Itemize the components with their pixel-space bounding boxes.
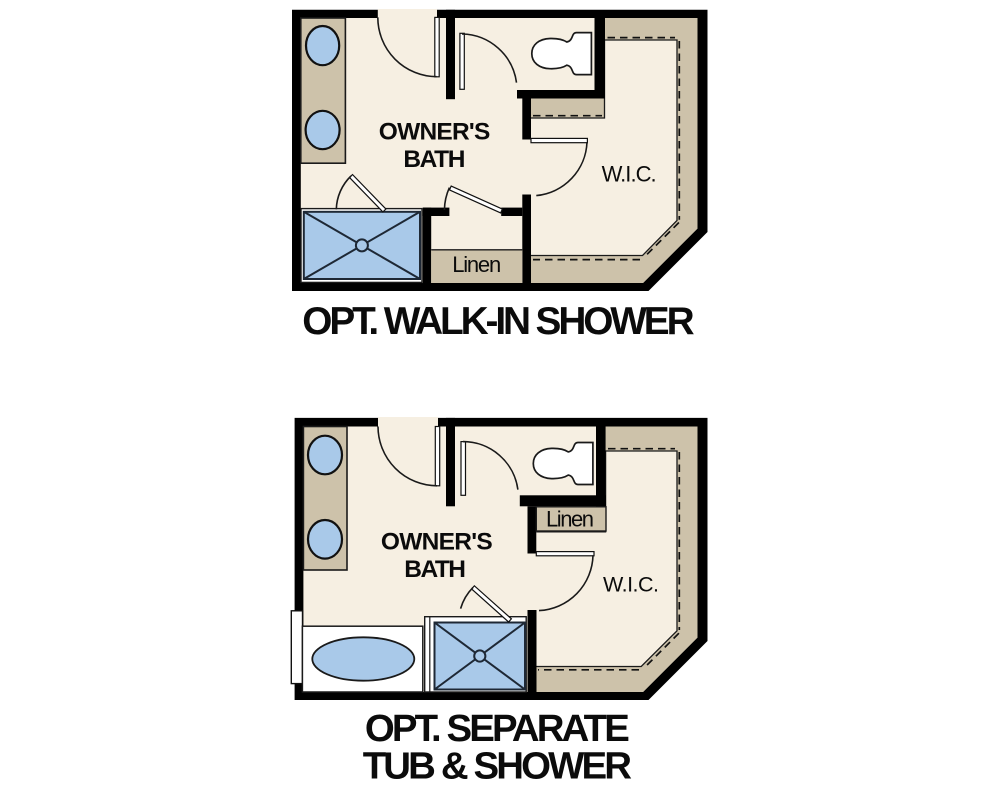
svg-text:Linen: Linen <box>546 507 594 532</box>
svg-text:OWNER'S: OWNER'S <box>381 529 493 556</box>
svg-text:W.I.C.: W.I.C. <box>603 573 659 597</box>
svg-text:OPT. WALK-IN SHOWER: OPT. WALK-IN SHOWER <box>302 300 694 343</box>
svg-text:TUB & SHOWER: TUB & SHOWER <box>363 744 632 787</box>
svg-text:W.I.C.: W.I.C. <box>602 162 657 187</box>
svg-text:BATH: BATH <box>404 556 466 583</box>
svg-text:Linen: Linen <box>452 252 501 277</box>
svg-text:BATH: BATH <box>403 146 465 173</box>
svg-text:OWNER'S: OWNER'S <box>379 119 491 146</box>
